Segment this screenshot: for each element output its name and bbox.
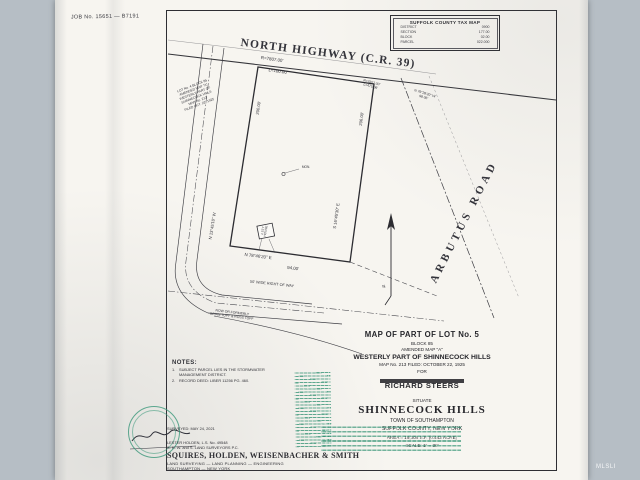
tax-map-box: SUFFOLK COUNTY TAX MAP DISTRICT 0900 SEC… (390, 15, 500, 51)
title-line2: BLOCK 85 (331, 341, 513, 346)
note-number: 1. (172, 368, 179, 378)
notes-block: NOTES: 1. SUBJECT PARCEL LIES IN THE STO… (172, 360, 292, 386)
for-label: FOR (331, 369, 513, 374)
tax-map-row: PARCEL 022.000 (399, 40, 492, 45)
title-line1: MAP OF PART OF LOT No. 5 (331, 330, 513, 339)
situate-label: SITUATE (331, 398, 513, 403)
north-letter: N (382, 284, 386, 289)
note-text: RECORD DEED: LIBER 11256 PG. 460. (179, 379, 249, 384)
note-text: SUBJECT PARCEL LIES IN THE STORMWATER MA… (179, 368, 292, 378)
client-name-wrap: RICHARD STEERS (385, 375, 460, 393)
tax-map-box-inner: SUFFOLK COUNTY TAX MAP DISTRICT 0900 SEC… (393, 18, 498, 49)
firm-name: SQUIRES, HOLDEN, WEISENBACHER & SMITH (167, 451, 427, 460)
note-item: 2. RECORD DEED: LIBER 11256 PG. 460. (172, 379, 292, 384)
job-number: JOB No. 15651 — B7191 (71, 13, 139, 20)
title-line5: MAP No. 213 FILED: OCTOBER 22, 1925 (331, 362, 513, 367)
notes-heading: NOTES: (172, 360, 292, 366)
tax-row-label: PARCEL (401, 40, 415, 45)
monument-label: MON. (302, 166, 310, 170)
tax-row-value: 022.000 (477, 40, 490, 45)
surveyed-date: SURVEYED: MAY 24, 2021 (167, 426, 427, 431)
title-line3: AMENDED MAP "A" (331, 347, 513, 352)
survey-photo: JOB No. 15651 — B7191 SUFFOLK COUNTY TAX… (0, 0, 640, 480)
redaction-bar (380, 379, 465, 384)
surveyors-pc-line: S. H. W. and S. LAND SURVEYORS P.C. (167, 445, 427, 450)
note-item: 1. SUBJECT PARCEL LIES IN THE STORMWATER… (172, 368, 292, 378)
photo-watermark: MLSLI (596, 464, 616, 470)
title-line4: WESTERLY PART OF SHINNECOCK HILLS (331, 354, 513, 361)
firm-block: SURVEYED: MAY 24, 2021 LESTER HOLDEN, L.… (167, 426, 427, 471)
place-name: SHINNECOCK HILLS (331, 404, 513, 416)
firm-location: SOUTHAMPTON — NEW YORK (167, 466, 427, 471)
note-number: 2. (172, 379, 179, 384)
